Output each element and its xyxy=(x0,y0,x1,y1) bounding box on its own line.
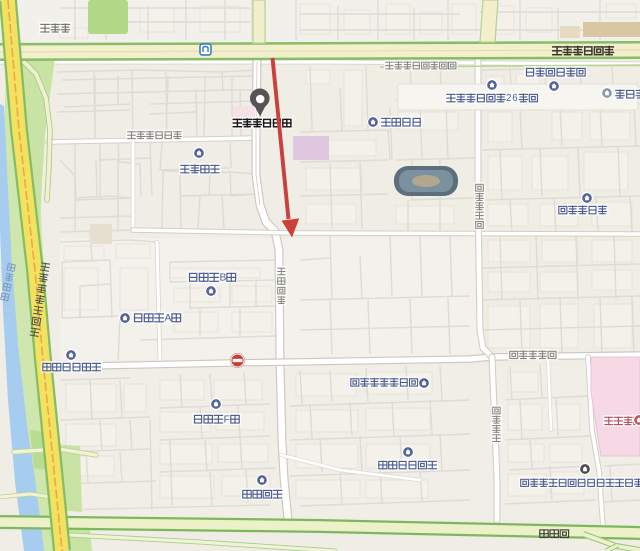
svg-text:B: B xyxy=(220,273,227,284)
svg-text:F: F xyxy=(224,414,230,425)
svg-text:6: 6 xyxy=(512,93,518,104)
svg-text:2: 2 xyxy=(506,93,511,104)
svg-text:A: A xyxy=(165,313,172,324)
